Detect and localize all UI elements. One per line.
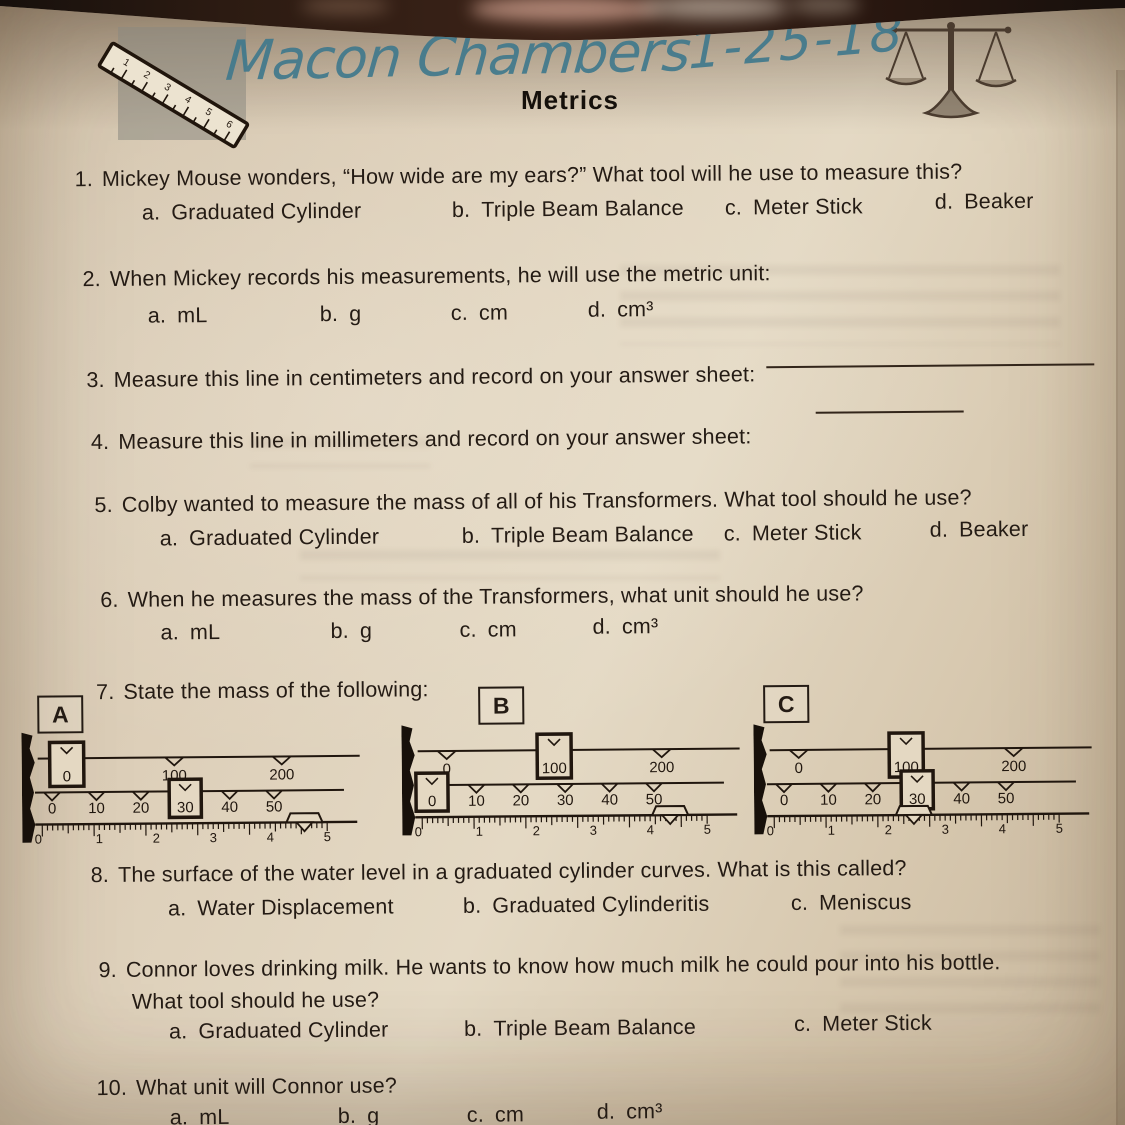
svg-text:1: 1 xyxy=(476,824,483,838)
svg-text:0: 0 xyxy=(428,793,436,810)
svg-text:20: 20 xyxy=(512,792,529,809)
background-blur xyxy=(790,0,860,14)
svg-text:0: 0 xyxy=(415,824,422,837)
svg-text:4: 4 xyxy=(647,822,654,837)
option-letter: c. xyxy=(794,1012,811,1036)
option-letter: c. xyxy=(791,891,808,915)
question-3: 3.Measure this line in centimeters and r… xyxy=(86,362,755,393)
question-1-option-b: b.Triple Beam Balance xyxy=(452,196,684,223)
svg-text:50: 50 xyxy=(998,790,1015,807)
option-label: Beaker xyxy=(964,189,1034,214)
option-letter: d. xyxy=(597,1100,616,1124)
option-letter: a. xyxy=(148,303,167,327)
question-8: 8.The surface of the water level in a gr… xyxy=(91,856,907,888)
question-number: 8. xyxy=(91,863,110,887)
svg-text:0: 0 xyxy=(35,832,42,845)
background-blur xyxy=(300,0,390,14)
svg-text:3: 3 xyxy=(942,822,949,837)
svg-text:100: 100 xyxy=(542,760,567,777)
balance-diagram-a: 010020001020304050012345 xyxy=(21,726,362,850)
option-letter: c. xyxy=(451,301,468,325)
question-10-option-a: a.mL xyxy=(170,1105,230,1125)
svg-text:5: 5 xyxy=(324,829,331,844)
worksheet-body: 1.Mickey Mouse wonders, “How wide are my… xyxy=(0,0,1125,1125)
option-letter: d. xyxy=(592,615,611,639)
question-5-option-b: b.Triple Beam Balance xyxy=(462,522,694,549)
svg-text:0: 0 xyxy=(63,768,71,785)
option-letter: b. xyxy=(462,524,481,548)
option-label: Graduated Cylinder xyxy=(189,525,379,551)
question-number: 6. xyxy=(100,588,119,612)
question-number: 5. xyxy=(94,493,113,517)
svg-text:50: 50 xyxy=(266,798,283,815)
option-label: Meter Stick xyxy=(752,520,862,545)
balance-diagram-b: 010020001020304050012345 xyxy=(401,718,742,842)
question-1-option-a: a.Graduated Cylinder xyxy=(142,199,362,226)
question-2-option-b: b.g xyxy=(320,302,362,327)
option-letter: a. xyxy=(168,896,187,920)
background-blur xyxy=(640,0,790,18)
svg-text:2: 2 xyxy=(533,823,540,837)
question-4-answer-line xyxy=(816,410,964,413)
background-blur xyxy=(470,0,660,22)
option-label: mL xyxy=(190,620,220,644)
option-letter: c. xyxy=(724,521,741,545)
option-label: Beaker xyxy=(959,517,1029,542)
svg-text:4: 4 xyxy=(267,830,274,845)
question-5-option-c: c.Meter Stick xyxy=(724,520,862,546)
option-label: Triple Beam Balance xyxy=(491,522,694,548)
question-5-option-a: a.Graduated Cylinder xyxy=(160,525,380,552)
svg-text:1: 1 xyxy=(96,831,103,845)
option-letter: a. xyxy=(160,620,179,644)
svg-text:40: 40 xyxy=(953,790,970,807)
question-number: 4. xyxy=(91,430,110,454)
option-letter: c. xyxy=(459,618,476,642)
option-letter: c. xyxy=(467,1103,484,1125)
balance-diagram-c: 010020001020304050012345 xyxy=(753,717,1094,841)
question-1: 1.Mickey Mouse wonders, “How wide are my… xyxy=(75,159,963,192)
question-8-option-c: c.Meniscus xyxy=(791,890,912,916)
option-label: Meter Stick xyxy=(822,1011,932,1036)
option-label: Triple Beam Balance xyxy=(481,196,684,222)
question-2-option-c: c.cm xyxy=(451,300,508,325)
worksheet-paper: 123 456 Macon Chamb xyxy=(0,0,1125,1125)
svg-text:200: 200 xyxy=(649,759,674,776)
option-letter: a. xyxy=(170,1105,189,1125)
svg-text:20: 20 xyxy=(864,791,881,808)
question-2-option-a: a.mL xyxy=(148,303,208,329)
option-label: cm xyxy=(488,617,517,641)
question-number: 7. xyxy=(96,680,115,704)
option-label: Graduated Cylinder xyxy=(171,199,361,225)
svg-text:20: 20 xyxy=(133,800,150,817)
option-label: cm³ xyxy=(622,614,659,638)
question-1-option-d: d.Beaker xyxy=(935,189,1034,215)
question-text: What tool should he use? xyxy=(132,988,380,1014)
option-letter: d. xyxy=(935,190,954,214)
option-label: g xyxy=(360,619,372,643)
svg-text:1: 1 xyxy=(828,823,835,837)
option-letter: a. xyxy=(142,200,161,224)
option-label: Meniscus xyxy=(819,890,912,915)
svg-text:3: 3 xyxy=(210,830,217,845)
question-1-option-c: c.Meter Stick xyxy=(725,194,863,220)
svg-text:0: 0 xyxy=(795,760,803,777)
svg-text:4: 4 xyxy=(999,821,1006,836)
question-text: The surface of the water level in a grad… xyxy=(118,856,907,887)
question-6-option-a: a.mL xyxy=(160,620,220,646)
svg-text:30: 30 xyxy=(557,792,574,809)
question-7: 7.State the mass of the following: xyxy=(96,677,429,705)
svg-text:30: 30 xyxy=(177,799,194,816)
question-number: 10. xyxy=(96,1076,127,1100)
question-6-option-b: b.g xyxy=(330,619,372,644)
option-letter: a. xyxy=(169,1019,188,1043)
question-4: 4.Measure this line in millimeters and r… xyxy=(91,424,752,455)
svg-text:2: 2 xyxy=(885,822,892,836)
question-9-option-b: b.Triple Beam Balance xyxy=(464,1015,696,1042)
option-letter: b. xyxy=(330,619,349,643)
option-label: cm xyxy=(495,1102,524,1125)
question-text: State the mass of the following: xyxy=(123,677,428,704)
svg-text:40: 40 xyxy=(601,792,618,809)
question-text: Connor loves drinking milk. He wants to … xyxy=(126,950,1001,982)
option-letter: d. xyxy=(588,298,607,322)
question-9-line2: What tool should he use? xyxy=(132,988,380,1015)
option-label: Graduated Cylinderitis xyxy=(492,892,709,918)
question-9-option-a: a.Graduated Cylinder xyxy=(169,1018,389,1045)
question-number: 3. xyxy=(86,368,105,392)
question-text: Measure this line in centimeters and rec… xyxy=(114,362,756,392)
question-6-option-c: c.cm xyxy=(459,617,516,642)
option-letter: b. xyxy=(338,1104,357,1125)
option-label: cm³ xyxy=(626,1099,663,1123)
svg-text:2: 2 xyxy=(153,831,160,845)
question-6: 6.When he measures the mass of the Trans… xyxy=(100,581,864,613)
option-label: mL xyxy=(199,1105,229,1125)
question-text: Mickey Mouse wonders, “How wide are my e… xyxy=(102,159,963,191)
question-text: When he measures the mass of the Transfo… xyxy=(128,581,864,611)
question-number: 1. xyxy=(75,167,94,191)
question-2: 2.When Mickey records his measurements, … xyxy=(82,261,770,292)
question-10-option-b: b.g xyxy=(338,1104,380,1125)
option-letter: d. xyxy=(930,518,949,542)
svg-text:0: 0 xyxy=(780,792,788,809)
option-label: Triple Beam Balance xyxy=(493,1015,696,1041)
question-number: 2. xyxy=(82,267,101,291)
question-number: 9. xyxy=(98,958,117,982)
option-letter: a. xyxy=(160,526,179,550)
option-letter: b. xyxy=(452,198,471,222)
svg-text:0: 0 xyxy=(48,800,56,817)
question-3-answer-line xyxy=(766,363,1094,368)
option-label: g xyxy=(349,302,361,326)
option-label: Water Displacement xyxy=(197,894,394,920)
svg-text:40: 40 xyxy=(221,799,238,816)
question-10: 10.What unit will Connor use? xyxy=(96,1073,397,1101)
question-5: 5.Colby wanted to measure the mass of al… xyxy=(94,485,971,518)
option-letter: c. xyxy=(725,195,742,219)
option-label: Graduated Cylinder xyxy=(198,1018,388,1044)
svg-text:200: 200 xyxy=(269,766,294,783)
balance-label-b: B xyxy=(478,686,524,724)
question-9: 9.Connor loves drinking milk. He wants t… xyxy=(98,950,1000,983)
question-6-option-d: d.cm³ xyxy=(592,614,658,640)
svg-text:5: 5 xyxy=(704,822,711,837)
option-label: cm³ xyxy=(617,297,654,321)
option-letter: b. xyxy=(320,302,339,326)
question-text: When Mickey records his measurements, he… xyxy=(110,261,771,291)
svg-text:3: 3 xyxy=(590,823,597,838)
option-label: g xyxy=(367,1104,379,1125)
svg-text:10: 10 xyxy=(820,792,837,809)
svg-text:5: 5 xyxy=(1056,821,1063,836)
question-text: Colby wanted to measure the mass of all … xyxy=(122,485,972,516)
svg-text:200: 200 xyxy=(1001,758,1026,775)
question-2-option-d: d.cm³ xyxy=(588,297,654,323)
svg-text:0: 0 xyxy=(767,823,774,836)
option-letter: b. xyxy=(463,894,482,918)
question-10-option-c: c.cm xyxy=(467,1102,524,1125)
option-letter: b. xyxy=(464,1017,483,1041)
option-label: cm xyxy=(479,300,508,324)
question-text: Measure this line in millimeters and rec… xyxy=(118,424,751,454)
balance-label-c: C xyxy=(763,685,809,723)
question-8-option-a: a.Water Displacement xyxy=(168,894,394,921)
worksheet-photo: 123 456 Macon Chamb xyxy=(0,0,1125,1125)
svg-text:10: 10 xyxy=(88,800,105,817)
option-label: Meter Stick xyxy=(753,194,863,219)
option-label: mL xyxy=(177,303,207,327)
question-5-option-d: d.Beaker xyxy=(930,517,1029,543)
question-8-option-b: b.Graduated Cylinderitis xyxy=(463,892,710,919)
question-9-option-c: c.Meter Stick xyxy=(794,1011,932,1037)
svg-text:10: 10 xyxy=(468,793,485,810)
question-10-option-d: d.cm³ xyxy=(597,1099,663,1125)
question-text: What unit will Connor use? xyxy=(136,1073,397,1099)
